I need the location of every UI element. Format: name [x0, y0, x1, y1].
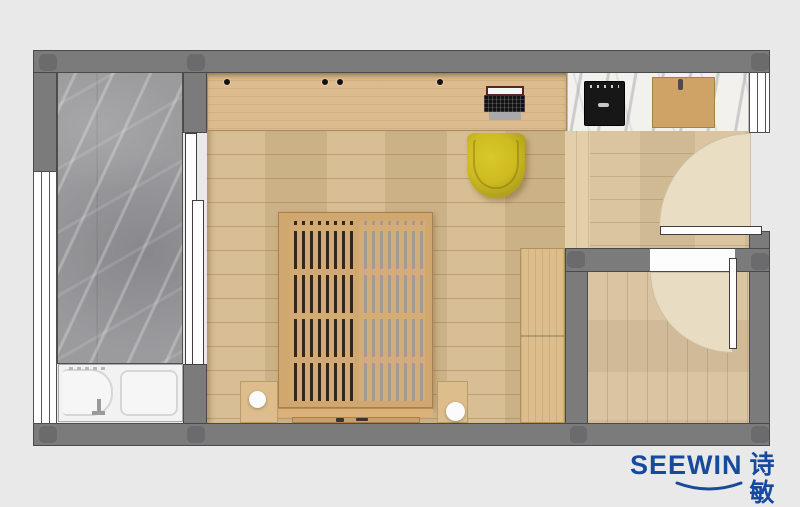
- wall-bottom: [33, 423, 770, 446]
- desk-knob: [337, 79, 343, 85]
- yellow-desk-chair: [467, 133, 525, 197]
- brand-logo: SEEWIN 诗敏: [630, 452, 795, 494]
- desk-knob: [224, 79, 230, 85]
- wall-top: [33, 50, 770, 73]
- brand-logo-cjk: 诗敏: [750, 452, 795, 507]
- column-mark: [751, 426, 769, 443]
- column-mark: [751, 53, 769, 71]
- bed-footboard: [278, 408, 433, 417]
- cooktop: [584, 81, 625, 126]
- platform-slat-bed: [278, 212, 433, 408]
- column-mark: [751, 253, 769, 270]
- desk-knob: [322, 79, 328, 85]
- shower-tray: [63, 369, 113, 416]
- brand-logo-swoosh: [674, 480, 744, 494]
- laptop-keyboard: [484, 95, 525, 112]
- brand-logo-text: SEEWIN: [630, 452, 743, 479]
- bathroom-floor: [57, 72, 183, 364]
- bed-base-notch: [356, 418, 368, 421]
- right-window: [749, 72, 770, 133]
- wall-bath-partition-upper: [183, 72, 207, 133]
- table-lamp-right: [446, 402, 465, 421]
- left-window: [33, 171, 57, 424]
- entry-door: [660, 226, 762, 235]
- desk-knob: [437, 79, 443, 85]
- wardrobe: [520, 248, 565, 423]
- cutting-board: [652, 77, 715, 128]
- bed-slats-right: [359, 221, 425, 401]
- shower-tub-unit: [58, 364, 183, 422]
- column-mark: [39, 426, 57, 443]
- wall-room-left: [565, 271, 588, 424]
- column-mark: [39, 54, 57, 71]
- bed-base-notch: [336, 418, 344, 422]
- entry-side-strip: [565, 131, 590, 248]
- column-mark: [187, 426, 205, 443]
- room-door-opening: [650, 249, 735, 271]
- laptop-screen: [486, 86, 524, 96]
- room-door: [729, 258, 737, 349]
- tub-vent-strip: [69, 367, 109, 370]
- sliding-door-panel-b: [192, 200, 204, 365]
- wall-left-upper: [33, 72, 57, 172]
- bathtub: [120, 370, 178, 416]
- wall-bath-partition-lower: [183, 364, 207, 424]
- bath-faucet-handle: [92, 411, 105, 415]
- column-mark: [570, 426, 587, 443]
- laptop-palmrest: [489, 112, 521, 120]
- bed-slats-left: [289, 221, 353, 401]
- table-lamp-left: [249, 391, 266, 408]
- cutting-board-handle: [678, 79, 683, 90]
- column-mark: [187, 54, 205, 71]
- floor-plan-canvas: SEEWIN 诗敏: [0, 0, 800, 507]
- column-mark: [567, 251, 585, 268]
